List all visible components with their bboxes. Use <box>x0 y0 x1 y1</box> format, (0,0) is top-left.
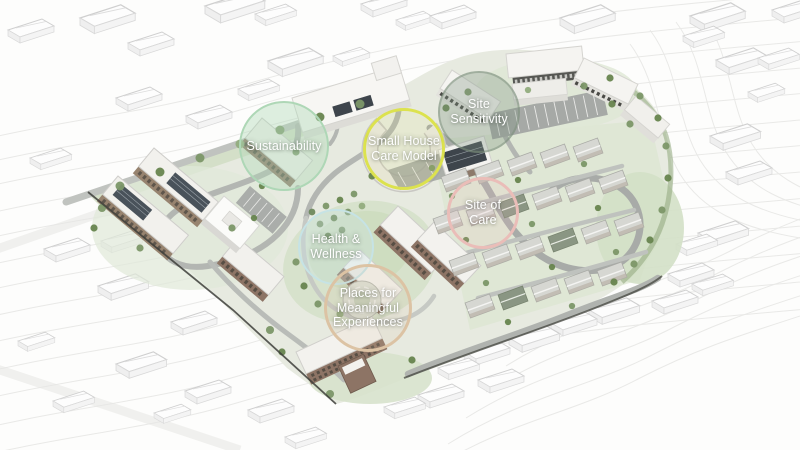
annotation-sustainability: Sustainability <box>239 101 329 191</box>
annotation-label: Site Sensitivity <box>450 97 507 127</box>
annotation-site-sensitivity: Site Sensitivity <box>438 71 520 153</box>
annotation-layer: SustainabilitySmall House Care ModelSite… <box>0 0 800 450</box>
annotation-label: Health & Wellness <box>310 232 361 262</box>
annotation-health-and-wellness: Health & Wellness <box>298 209 374 285</box>
annotation-label: Places for Meaningful Experiences <box>333 286 403 330</box>
annotation-label: Site of Care <box>465 198 501 228</box>
annotation-label: Small House Care Model <box>368 134 440 164</box>
masterplan-figure: SustainabilitySmall House Care ModelSite… <box>0 0 800 450</box>
annotation-site-of-care: Site of Care <box>447 177 519 249</box>
annotation-places-for-meaningful-experiences: Places for Meaningful Experiences <box>324 264 412 352</box>
annotation-label: Sustainability <box>246 139 321 154</box>
annotation-small-house-care-model: Small House Care Model <box>363 108 445 190</box>
